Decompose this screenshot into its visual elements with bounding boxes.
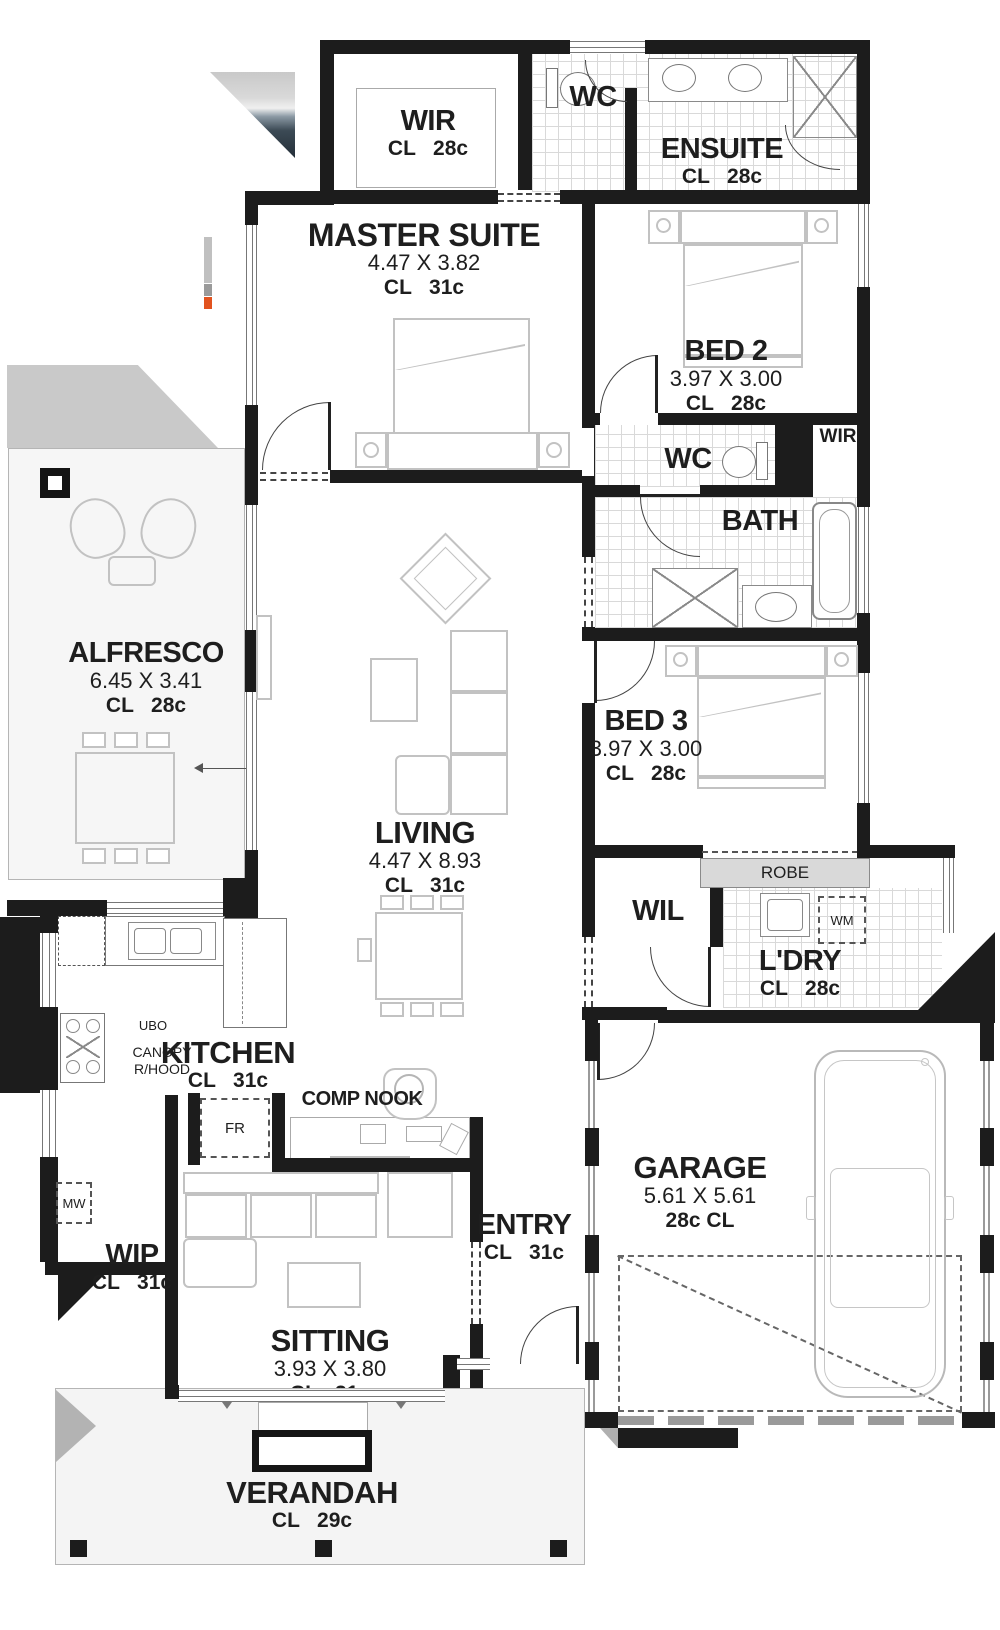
pier (585, 1128, 599, 1166)
window (858, 507, 869, 613)
room-name: COMP NOOK (302, 1084, 423, 1114)
room-label-bed3: BED 3 3.97 X 3.00 CL 28c (590, 706, 703, 787)
room-label-comp-nook: COMP NOOK (302, 1084, 423, 1114)
room-name: ENTRY (477, 1210, 572, 1240)
burner (86, 1019, 100, 1033)
corner-bench (58, 916, 105, 966)
wall (595, 845, 703, 858)
verandah-post (70, 1540, 87, 1557)
door-arc (262, 402, 330, 470)
window (107, 902, 223, 914)
slider-arrowhead (194, 763, 203, 773)
outdoor-chair (114, 848, 138, 864)
room-label-entry: ENTRY CL 31c (477, 1210, 572, 1266)
outdoor-chair (146, 848, 170, 864)
room-label-wc2: WC (664, 444, 711, 474)
wall (470, 1324, 483, 1390)
room-dims: 3.97 X 3.00 (670, 366, 783, 391)
outdoor-chair (82, 732, 106, 748)
robe-slider-dashed (702, 851, 868, 853)
room-dims: 4.47 X 8.93 (369, 848, 482, 873)
room-name: ENSUITE (661, 134, 783, 164)
window (858, 197, 869, 287)
room-dims: 3.93 X 3.80 (271, 1356, 390, 1381)
room-ceiling: CL 31c (477, 1240, 572, 1266)
window (42, 933, 56, 1007)
room-ceiling: CL 31c (92, 1270, 172, 1296)
car-mirror (806, 1196, 816, 1220)
room-ceiling: CL 31c (161, 1068, 295, 1094)
room-name: ALFRESCO (68, 638, 224, 668)
room-name: MASTER SUITE (308, 220, 540, 250)
wall (272, 1158, 483, 1172)
wall (857, 40, 870, 197)
sofa-seat (250, 1194, 312, 1238)
lamp (673, 652, 688, 667)
sofa-seat (450, 754, 508, 815)
wall (245, 405, 258, 505)
ottoman (370, 658, 418, 722)
bathtub-inner (819, 509, 850, 613)
room-name: KITCHEN (161, 1038, 295, 1068)
window-seat (258, 1402, 368, 1432)
coffee-table (108, 556, 156, 586)
ubo-label: UBO (139, 1018, 167, 1033)
room-label-wir2: WIR (820, 422, 857, 452)
sofa-seat (450, 692, 508, 754)
bed (697, 677, 826, 777)
wall (40, 1007, 58, 1090)
sink-bowl (134, 928, 166, 954)
window (246, 225, 257, 405)
verandah-post (315, 1540, 332, 1557)
wall (188, 1093, 200, 1165)
wall (588, 485, 640, 497)
dining-chair (357, 938, 372, 962)
room-dims: 3.97 X 3.00 (590, 736, 703, 761)
robe-banner: ROBE (700, 858, 870, 888)
room-ceiling: CL 28c (590, 761, 703, 787)
room-label-bath: BATH (722, 506, 798, 536)
wall (700, 485, 813, 497)
lamp (363, 442, 379, 458)
pier (980, 1342, 994, 1380)
shower (652, 568, 738, 628)
room-ceiling: CL 31c (369, 873, 482, 899)
sink-bowl (170, 928, 202, 954)
room-label-ldry: L'DRY CL 28c (759, 946, 841, 1002)
door-arc (598, 1023, 655, 1080)
wall (518, 54, 532, 190)
window-tick (222, 1402, 232, 1409)
outdoor-chair (82, 848, 106, 864)
dining-chair (440, 1002, 464, 1017)
washing-machine: WM (818, 896, 866, 944)
room-label-kitchen: KITCHEN CL 31c (161, 1038, 295, 1094)
robe-opening (498, 193, 560, 202)
wall (595, 413, 600, 425)
window (246, 505, 257, 630)
door-arc (595, 641, 655, 701)
room-ceiling: 28c CL (633, 1208, 766, 1234)
lamp (546, 442, 562, 458)
window-tick (396, 1402, 406, 1409)
sofa-chaise (183, 1238, 257, 1288)
room-ceiling: CL 28c (670, 391, 783, 417)
pier (585, 1023, 599, 1061)
window (457, 1358, 490, 1370)
bed-head (387, 432, 538, 470)
room-name: WC (569, 82, 616, 112)
dining-chair (380, 1002, 404, 1017)
wall (710, 888, 723, 947)
basin (755, 592, 797, 622)
burner (66, 1060, 80, 1074)
kitchen-bench-return (223, 918, 287, 1028)
door-arc (650, 947, 710, 1007)
room-name: WIP (92, 1240, 172, 1270)
paving-wedge (7, 365, 218, 448)
room-name: LIVING (369, 818, 482, 848)
room-name: SITTING (271, 1326, 390, 1356)
robe-label: ROBE (761, 863, 809, 883)
room-name: WIR (388, 106, 468, 136)
bed-head (697, 645, 826, 677)
room-name: VERANDAH (226, 1478, 398, 1508)
wall (223, 878, 258, 918)
wall (962, 1412, 995, 1428)
room-name: WC (664, 444, 711, 474)
room-label-ensuite: ENSUITE CL 28c (661, 134, 783, 190)
outdoor-chair (146, 732, 170, 748)
room-label-verandah: VERANDAH CL 29c (226, 1478, 398, 1534)
label-ubo: UBO (139, 1018, 167, 1033)
lamp (656, 218, 671, 233)
outdoor-table (75, 752, 175, 844)
wall (582, 628, 870, 641)
door-leaf (594, 641, 597, 703)
sofa-back (183, 1172, 379, 1194)
room-name: GARAGE (633, 1153, 766, 1183)
room-label-garage: GARAGE 5.61 X 5.61 28c CL (633, 1153, 766, 1234)
burner (86, 1060, 100, 1074)
room-ceiling: CL 28c (68, 693, 224, 719)
washing-machine-label: WM (830, 913, 853, 928)
laundry-trough-inner (767, 899, 803, 931)
basin (662, 64, 696, 92)
wall (775, 419, 813, 485)
room-dims: 5.61 X 5.61 (633, 1183, 766, 1208)
garage-door (618, 1416, 962, 1425)
pier (980, 1023, 994, 1061)
paper (406, 1126, 442, 1142)
room-name: L'DRY (759, 946, 841, 976)
door-arc (600, 355, 658, 413)
toilet-cistern (756, 442, 768, 480)
room-name: WIR (820, 422, 857, 452)
tv-unit (256, 615, 272, 700)
room-label-alfresco: ALFRESCO 6.45 X 3.41 CL 28c (68, 638, 224, 719)
dining-table (375, 912, 463, 1000)
pier (165, 1385, 179, 1399)
room-label-wc1: WC (569, 82, 616, 112)
sofa-seat (315, 1194, 377, 1238)
wall (658, 1010, 995, 1023)
wall (0, 917, 40, 1093)
room-label-wil: WIL (632, 896, 684, 926)
pier (980, 1128, 994, 1166)
wall (618, 1428, 738, 1448)
pier (585, 1235, 599, 1273)
alfresco-post (40, 468, 70, 498)
wall (645, 40, 870, 54)
sofa-chaise (395, 755, 450, 815)
room-dims: 6.45 X 3.41 (68, 668, 224, 693)
sliding-door (246, 692, 257, 868)
window (570, 41, 645, 53)
room-label-wir1: WIR CL 28c (388, 106, 468, 162)
wall (245, 191, 334, 205)
master-opening (260, 472, 328, 481)
room-label-bed2: BED 2 3.97 X 3.00 CL 28c (670, 336, 783, 417)
window (858, 673, 869, 803)
pier (980, 1235, 994, 1273)
wall (857, 287, 870, 507)
step (252, 1430, 372, 1472)
wall (857, 613, 870, 673)
room-ceiling: CL 28c (661, 164, 783, 190)
room-ceiling: CL 28c (759, 976, 841, 1002)
bay-window (178, 1390, 445, 1402)
laptop (360, 1124, 386, 1144)
room-name: BED 3 (590, 706, 703, 736)
wall (320, 40, 334, 205)
edge-mark (204, 237, 212, 283)
front-door-leaf (576, 1306, 579, 1364)
wall (245, 191, 258, 225)
outdoor-chair (114, 732, 138, 748)
opening-dashed (584, 557, 593, 627)
toilet-bowl (722, 446, 756, 478)
lamp (834, 652, 849, 667)
bed (393, 318, 530, 434)
room-ceiling: CL 29c (226, 1508, 398, 1534)
microwave: MW (56, 1182, 92, 1224)
wall (585, 1010, 598, 1023)
room-ceiling: CL 31c (308, 275, 540, 301)
verandah-post (550, 1540, 567, 1557)
room-label-living: LIVING 4.47 X 8.93 CL 31c (369, 818, 482, 899)
basin (728, 64, 762, 92)
fridge: FR (200, 1098, 270, 1158)
sofa-seat (185, 1194, 247, 1238)
window (42, 1090, 56, 1157)
room-dims: 4.47 X 3.82 (308, 250, 540, 275)
bed-foot (697, 777, 826, 789)
door-leaf (640, 494, 700, 497)
wall (272, 1093, 285, 1165)
chamfer-gray (600, 1428, 618, 1448)
room-label-master: MASTER SUITE 4.47 X 3.82 CL 31c (308, 220, 540, 301)
burner (66, 1019, 80, 1033)
logo-triangle (210, 72, 295, 158)
wall (330, 470, 582, 483)
bench-dashed-line (242, 922, 243, 1024)
toilet-cistern (546, 68, 558, 108)
wall (625, 88, 637, 190)
sofa-seat (450, 630, 508, 692)
dining-chair (410, 1002, 434, 1017)
coffee-table (287, 1262, 361, 1308)
bed-head (680, 210, 806, 244)
door-leaf (655, 355, 658, 413)
wall (40, 900, 58, 933)
wall (320, 40, 570, 54)
fridge-label: FR (225, 1120, 245, 1137)
car-mirror (944, 1196, 954, 1220)
floor-plan: ALFRESCO 6.45 X 3.41 CL 28c WIR CL 28c W… (0, 0, 1000, 1630)
edge-mark (204, 284, 212, 296)
car-roof (830, 1168, 930, 1308)
wall (857, 845, 955, 858)
room-label-wip: WIP CL 31c (92, 1240, 172, 1296)
wall (560, 190, 870, 204)
front-door-arc (520, 1306, 578, 1364)
slider-arrow (200, 768, 246, 769)
wall (585, 1412, 618, 1428)
opening-dashed (584, 937, 593, 1007)
armchair (387, 1172, 453, 1238)
room-name: BATH (722, 506, 798, 536)
room-name: BED 2 (670, 336, 783, 366)
window (943, 858, 954, 933)
door-leaf (708, 947, 711, 1007)
burner-center (66, 1036, 100, 1058)
lamp (814, 218, 829, 233)
wall (582, 204, 595, 428)
edge-mark-orange (204, 297, 212, 309)
microwave-label: MW (62, 1196, 85, 1211)
room-name: WIL (632, 896, 684, 926)
door-leaf (328, 402, 331, 470)
room-ceiling: CL 28c (388, 136, 468, 162)
wall (334, 190, 498, 204)
car-detail (921, 1058, 929, 1066)
pier (585, 1342, 599, 1380)
